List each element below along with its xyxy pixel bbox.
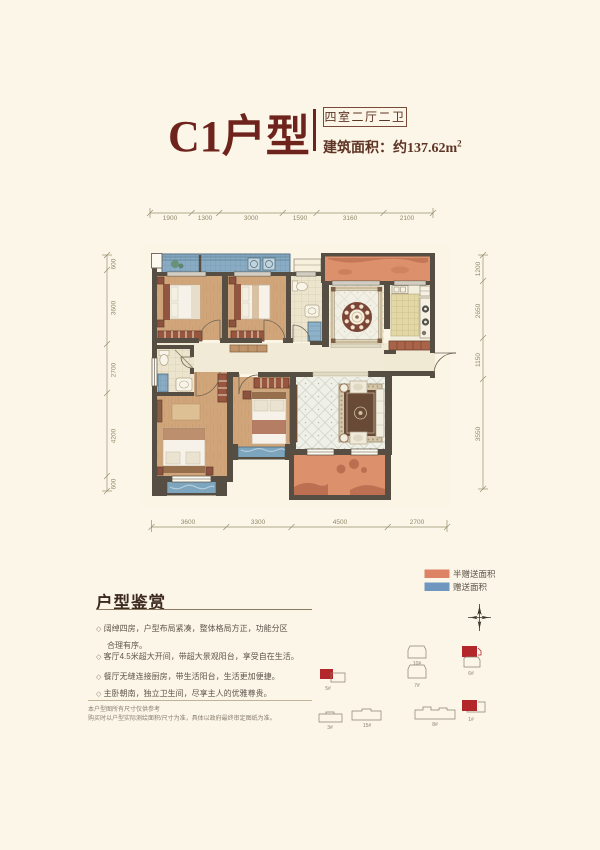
- svg-text:3160: 3160: [343, 215, 358, 222]
- svg-text:2100: 2100: [400, 215, 415, 222]
- svg-text:1590: 1590: [293, 215, 308, 222]
- svg-text:3600: 3600: [181, 519, 196, 526]
- svg-text:3000: 3000: [244, 215, 259, 222]
- svg-text:600: 600: [111, 478, 118, 489]
- svg-text:15#: 15#: [363, 723, 372, 729]
- svg-text:1150: 1150: [475, 353, 482, 367]
- svg-text:4200: 4200: [111, 428, 118, 443]
- svg-text:2700: 2700: [111, 362, 118, 377]
- svg-text:10#: 10#: [413, 661, 422, 667]
- svg-text:1900: 1900: [163, 215, 178, 222]
- svg-text:3#: 3#: [327, 725, 333, 731]
- svg-text:3550: 3550: [475, 426, 482, 441]
- svg-text:3300: 3300: [251, 519, 266, 526]
- svg-text:1300: 1300: [198, 215, 213, 222]
- svg-text:2650: 2650: [475, 303, 482, 318]
- svg-text:1200: 1200: [475, 261, 482, 276]
- svg-text:赠送面积: 赠送面积: [453, 582, 488, 592]
- svg-text:7#: 7#: [414, 683, 420, 689]
- svg-text:1#: 1#: [468, 717, 474, 723]
- svg-text:2700: 2700: [410, 519, 425, 526]
- svg-text:8#: 8#: [432, 722, 438, 728]
- svg-text:3600: 3600: [111, 300, 118, 315]
- svg-text:600: 600: [111, 258, 118, 269]
- svg-text:半赠送面积: 半赠送面积: [453, 569, 496, 579]
- svg-text:6#: 6#: [468, 671, 474, 677]
- svg-text:4500: 4500: [333, 519, 348, 526]
